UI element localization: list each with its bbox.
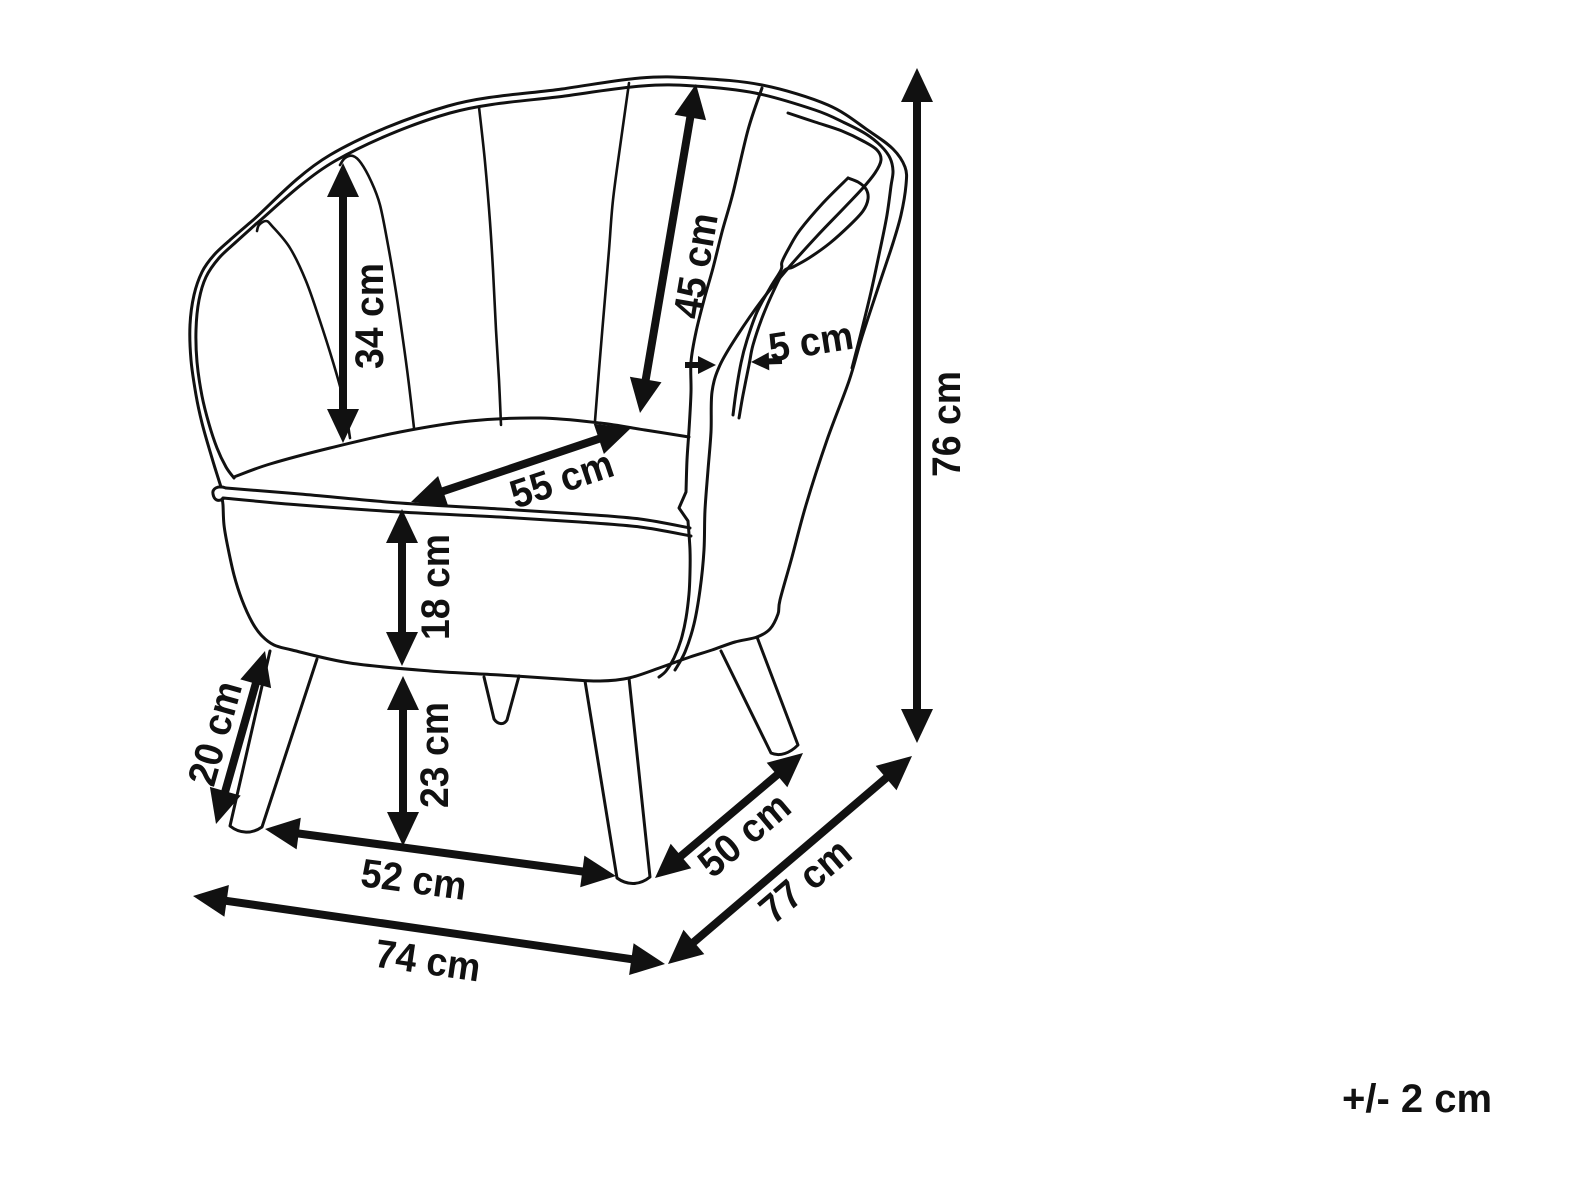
svg-text:18 cm: 18 cm	[414, 534, 458, 640]
svg-text:23 cm: 23 cm	[413, 702, 457, 808]
svg-text:+/- 2 cm: +/- 2 cm	[1342, 1077, 1492, 1121]
svg-text:76 cm: 76 cm	[925, 371, 969, 477]
svg-text:34 cm: 34 cm	[348, 263, 392, 369]
